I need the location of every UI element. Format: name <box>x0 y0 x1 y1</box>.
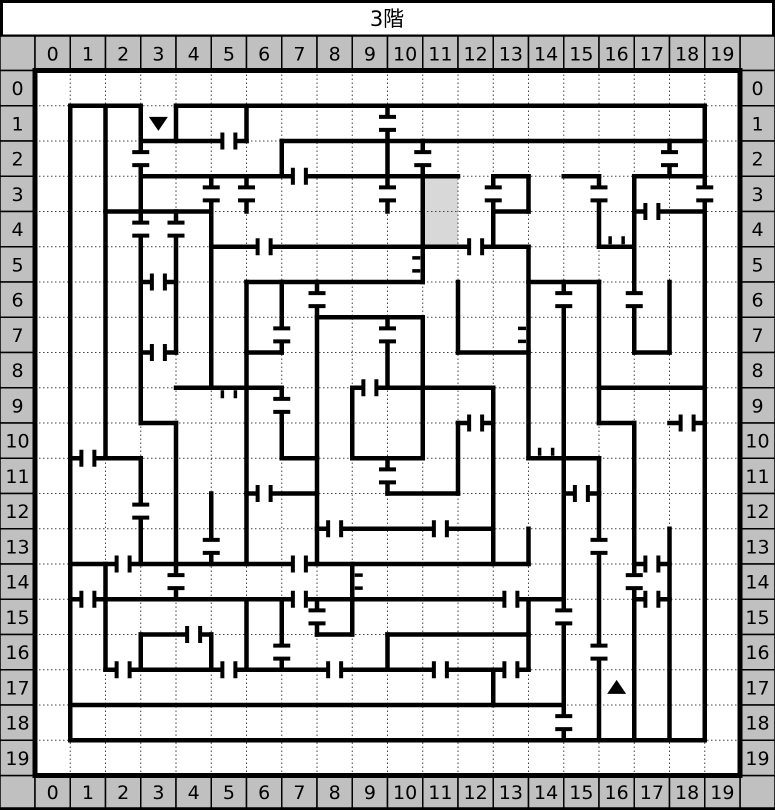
row-header-left: 12 <box>5 501 29 523</box>
door-icon <box>379 328 396 341</box>
door-icon <box>434 520 447 537</box>
shaded-cell <box>423 212 458 247</box>
row-header-right: 2 <box>751 149 763 171</box>
col-header-bottom: 7 <box>293 782 305 804</box>
col-header-top: 15 <box>569 43 593 65</box>
col-header-bottom: 8 <box>329 782 341 804</box>
row-header-right: 0 <box>751 78 763 100</box>
door-icon <box>168 575 185 588</box>
corner-cell-bg <box>0 776 35 809</box>
door-icon <box>555 716 572 729</box>
col-header-bottom: 17 <box>640 782 664 804</box>
row-header-right: 7 <box>751 325 763 347</box>
door-icon <box>152 344 165 361</box>
door-icon <box>187 626 200 643</box>
corner-cell-bg <box>740 776 775 809</box>
col-header-top: 2 <box>117 43 129 65</box>
row-header-left: 7 <box>11 325 23 347</box>
row-header-left: 18 <box>5 713 29 735</box>
col-header-bottom: 19 <box>710 782 734 804</box>
col-header-bottom: 13 <box>499 782 523 804</box>
door-icon <box>379 117 396 130</box>
secret-door-icon <box>610 236 623 244</box>
col-header-bottom: 11 <box>428 782 452 804</box>
row-header-right: 5 <box>751 254 763 276</box>
door-icon <box>222 133 235 150</box>
col-header-top: 1 <box>82 43 94 65</box>
row-header-left: 14 <box>5 572 29 594</box>
row-header-right: 3 <box>751 184 763 206</box>
secret-door-icon <box>222 390 235 398</box>
door-icon <box>504 591 517 608</box>
door-icon <box>575 485 588 502</box>
col-header-top: 6 <box>258 43 270 65</box>
shaded-cell <box>423 176 458 211</box>
row-header-right: 12 <box>745 501 769 523</box>
door-icon <box>555 610 572 623</box>
col-header-bottom: 5 <box>223 782 235 804</box>
door-icon <box>434 661 447 678</box>
door-icon <box>626 293 643 306</box>
door-icon <box>152 274 165 291</box>
door-icon <box>258 485 271 502</box>
col-header-bottom: 9 <box>364 782 376 804</box>
row-header-right: 19 <box>745 748 769 770</box>
stairs-down-icon <box>149 117 168 131</box>
corner-cell-bg <box>740 36 775 71</box>
row-header-right: 1 <box>751 113 763 135</box>
col-header-top: 10 <box>393 43 417 65</box>
door-icon <box>328 661 341 678</box>
row-header-left: 11 <box>5 466 29 488</box>
door-icon <box>117 556 130 573</box>
door-icon <box>132 152 149 165</box>
col-header-top: 4 <box>188 43 200 65</box>
door-icon <box>379 187 396 200</box>
maze-grid <box>35 71 740 776</box>
col-header-top: 9 <box>364 43 376 65</box>
door-icon <box>309 610 326 623</box>
col-header-top: 3 <box>152 43 164 65</box>
secret-door-icon <box>540 448 553 456</box>
row-header-right: 18 <box>745 713 769 735</box>
col-header-bottom: 14 <box>534 782 558 804</box>
col-header-bottom: 12 <box>464 782 488 804</box>
door-icon <box>168 223 185 236</box>
door-icon <box>132 223 149 236</box>
row-header-right: 16 <box>745 642 769 664</box>
row-header-left: 3 <box>11 184 23 206</box>
door-icon <box>626 575 643 588</box>
row-header-left: 9 <box>11 395 23 417</box>
door-icon <box>258 238 271 255</box>
row-header-left: 4 <box>11 219 23 241</box>
secret-door-icon <box>355 575 363 588</box>
door-icon <box>117 661 130 678</box>
door-icon <box>591 187 608 200</box>
row-header-left: 10 <box>5 431 29 453</box>
row-header-left: 17 <box>5 677 29 699</box>
door-icon <box>645 591 658 608</box>
col-header-bottom: 6 <box>258 782 270 804</box>
row-header-right: 11 <box>745 466 769 488</box>
col-header-top: 18 <box>675 43 699 65</box>
col-header-top: 5 <box>223 43 235 65</box>
door-icon <box>485 187 502 200</box>
door-icon <box>414 152 431 165</box>
door-icon <box>81 591 94 608</box>
row-header-left: 1 <box>11 113 23 135</box>
secret-door-icon <box>518 328 526 341</box>
door-icon <box>273 328 290 341</box>
col-header-bottom: 16 <box>605 782 629 804</box>
row-header-left: 5 <box>11 254 23 276</box>
col-header-bottom: 2 <box>117 782 129 804</box>
floor-map: 0011223344556677889910101111121213131414… <box>0 0 775 810</box>
floor-map-window: 0011223344556677889910101111121213131414… <box>0 0 775 810</box>
row-header-left: 19 <box>5 748 29 770</box>
row-header-left: 0 <box>11 78 23 100</box>
door-icon <box>328 520 341 537</box>
door-icon <box>645 556 658 573</box>
door-icon <box>504 661 517 678</box>
col-header-bottom: 4 <box>188 782 200 804</box>
row-header-left: 15 <box>5 607 29 629</box>
door-icon <box>222 661 235 678</box>
row-header-right: 13 <box>745 536 769 558</box>
col-header-bottom: 0 <box>47 782 59 804</box>
door-icon <box>293 591 306 608</box>
door-icon <box>363 379 376 396</box>
col-header-bottom: 1 <box>82 782 94 804</box>
door-icon <box>469 238 482 255</box>
door-icon <box>696 187 713 200</box>
door-icon <box>379 469 396 482</box>
col-header-top: 17 <box>640 43 664 65</box>
door-icon <box>132 505 149 518</box>
corner-cell-bg <box>0 36 35 71</box>
door-icon <box>555 293 572 306</box>
door-icon <box>293 168 306 185</box>
door-icon <box>309 293 326 306</box>
row-header-left: 8 <box>11 360 23 382</box>
col-header-top: 19 <box>710 43 734 65</box>
door-icon <box>681 415 694 432</box>
col-header-top: 14 <box>534 43 558 65</box>
door-icon <box>591 540 608 553</box>
door-icon <box>469 415 482 432</box>
door-icon <box>203 187 220 200</box>
col-header-top: 0 <box>47 43 59 65</box>
door-icon <box>645 203 658 220</box>
row-header-right: 15 <box>745 607 769 629</box>
row-header-right: 10 <box>745 431 769 453</box>
stairs-up-icon <box>607 680 626 694</box>
col-header-top: 12 <box>464 43 488 65</box>
col-header-top: 11 <box>428 43 452 65</box>
door-icon <box>203 540 220 553</box>
col-header-top: 16 <box>605 43 629 65</box>
row-header-right: 4 <box>751 219 763 241</box>
door-icon <box>661 152 678 165</box>
door-icon <box>293 556 306 573</box>
col-header-top: 8 <box>329 43 341 65</box>
row-header-right: 17 <box>745 677 769 699</box>
col-header-bottom: 15 <box>569 782 593 804</box>
col-header-bottom: 3 <box>152 782 164 804</box>
row-header-right: 9 <box>751 395 763 417</box>
door-icon <box>238 187 255 200</box>
row-header-left: 6 <box>11 290 23 312</box>
door-icon <box>273 399 290 412</box>
row-header-right: 14 <box>745 572 769 594</box>
col-header-bottom: 10 <box>393 782 417 804</box>
row-header-left: 16 <box>5 642 29 664</box>
row-header-left: 2 <box>11 149 23 171</box>
row-header-right: 8 <box>751 360 763 382</box>
col-header-bottom: 18 <box>675 782 699 804</box>
row-header-right: 6 <box>751 290 763 312</box>
door-icon <box>81 450 94 467</box>
col-header-top: 13 <box>499 43 523 65</box>
door-icon <box>273 646 290 659</box>
col-header-top: 7 <box>293 43 305 65</box>
floor-title: 3階 <box>370 7 404 31</box>
secret-door-icon <box>412 258 420 271</box>
row-header-left: 13 <box>5 536 29 558</box>
door-icon <box>591 646 608 659</box>
